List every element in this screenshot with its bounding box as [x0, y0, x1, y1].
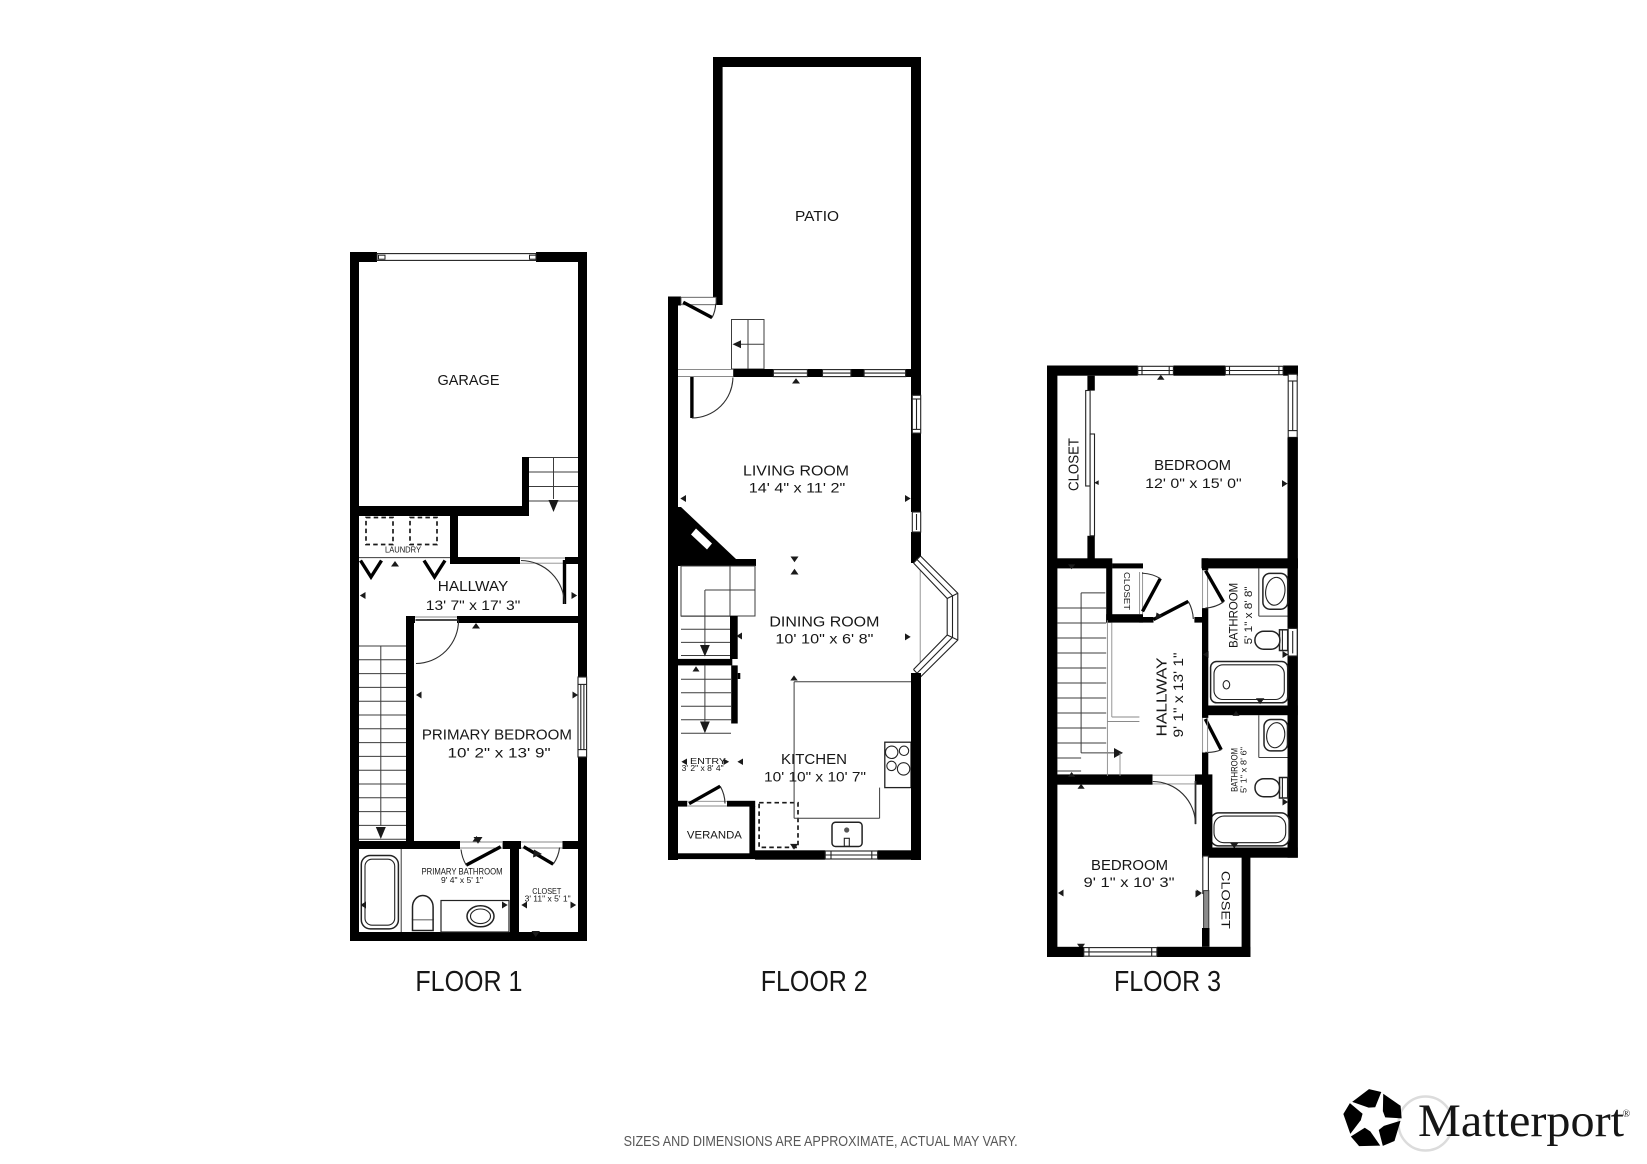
svg-text:®: ®: [1623, 1109, 1631, 1120]
svg-text:CLOSET: CLOSET: [1122, 572, 1132, 610]
svg-text:DINING ROOM: DINING ROOM: [769, 615, 879, 631]
svg-text:10' 2" x 13' 9": 10' 2" x 13' 9": [448, 746, 551, 761]
svg-text:BEDROOM: BEDROOM: [1154, 458, 1231, 474]
svg-text:14' 4" x 11' 2": 14' 4" x 11' 2": [749, 481, 846, 496]
svg-text:LIVING ROOM: LIVING ROOM: [743, 464, 849, 480]
svg-text:10' 10" x 10' 7": 10' 10" x 10' 7": [764, 770, 866, 785]
svg-text:PRIMARY BEDROOM: PRIMARY BEDROOM: [422, 728, 572, 744]
svg-text:9' 1" x 10' 3": 9' 1" x 10' 3": [1084, 875, 1175, 890]
svg-text:9' 4" x 5' 1": 9' 4" x 5' 1": [441, 875, 483, 885]
svg-text:5' 1" x 8' 6": 5' 1" x 8' 6": [1239, 747, 1249, 793]
svg-text:3' 11" x 5' 1": 3' 11" x 5' 1": [525, 894, 571, 904]
svg-text:5' 1" x 8' 8": 5' 1" x 8' 8": [1243, 586, 1255, 644]
svg-text:FLOOR 2: FLOOR 2: [761, 966, 868, 998]
svg-text:12' 0" x 15' 0": 12' 0" x 15' 0": [1145, 476, 1242, 491]
svg-text:FLOOR 3: FLOOR 3: [1114, 966, 1221, 998]
svg-text:BATHROOM: BATHROOM: [1226, 583, 1240, 648]
svg-text:HALLWAY: HALLWAY: [438, 579, 509, 595]
svg-text:9' 1" x 13' 1": 9' 1" x 13' 1": [1171, 652, 1186, 737]
svg-text:HALLWAY: HALLWAY: [1154, 657, 1170, 736]
svg-text:KITCHEN: KITCHEN: [781, 752, 847, 768]
svg-text:SIZES AND DIMENSIONS ARE APPRO: SIZES AND DIMENSIONS ARE APPROXIMATE, AC…: [624, 1134, 1018, 1150]
svg-text:VERANDA: VERANDA: [687, 830, 743, 842]
svg-text:10' 10" x 6' 8": 10' 10" x 6' 8": [775, 632, 873, 647]
svg-text:GARAGE: GARAGE: [438, 373, 500, 389]
svg-text:3' 2" x 8' 4": 3' 2" x 8' 4": [682, 763, 724, 773]
svg-text:BEDROOM: BEDROOM: [1091, 858, 1168, 874]
svg-text:LAUNDRY: LAUNDRY: [385, 545, 421, 555]
svg-text:13' 7" x 17' 3": 13' 7" x 17' 3": [426, 598, 521, 613]
svg-text:FLOOR 1: FLOOR 1: [415, 966, 522, 998]
svg-text:PATIO: PATIO: [795, 209, 839, 225]
svg-text:CLOSET: CLOSET: [1067, 438, 1083, 491]
svg-text:CLOSET: CLOSET: [1218, 871, 1232, 930]
svg-text:Matterport: Matterport: [1418, 1095, 1624, 1147]
